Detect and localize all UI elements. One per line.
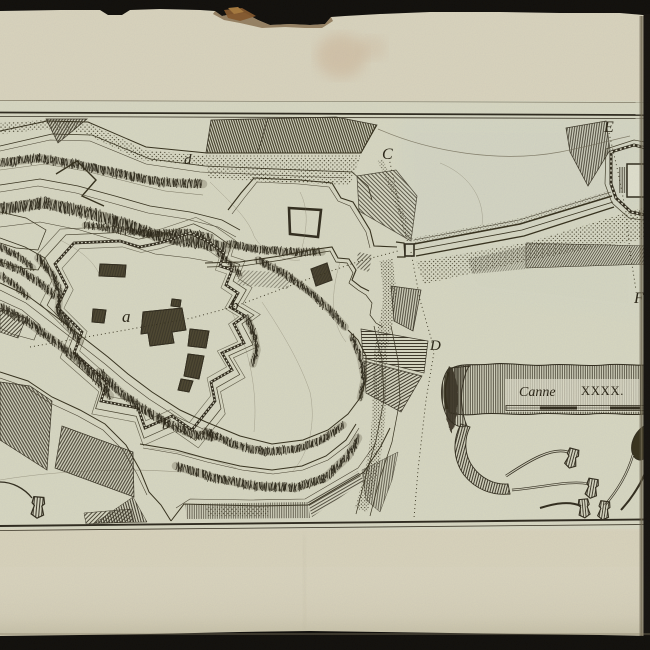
svg-text:b: b — [162, 417, 170, 433]
svg-text:b: b — [231, 298, 239, 314]
svg-text:D: D — [429, 338, 441, 354]
svg-text:d: d — [184, 152, 192, 168]
svg-text:E: E — [603, 119, 614, 136]
svg-text:a: a — [122, 307, 131, 326]
svg-text:XXXX.: XXXX. — [581, 384, 624, 398]
svg-text:Canne: Canne — [519, 385, 556, 400]
svg-text:C: C — [382, 146, 393, 163]
